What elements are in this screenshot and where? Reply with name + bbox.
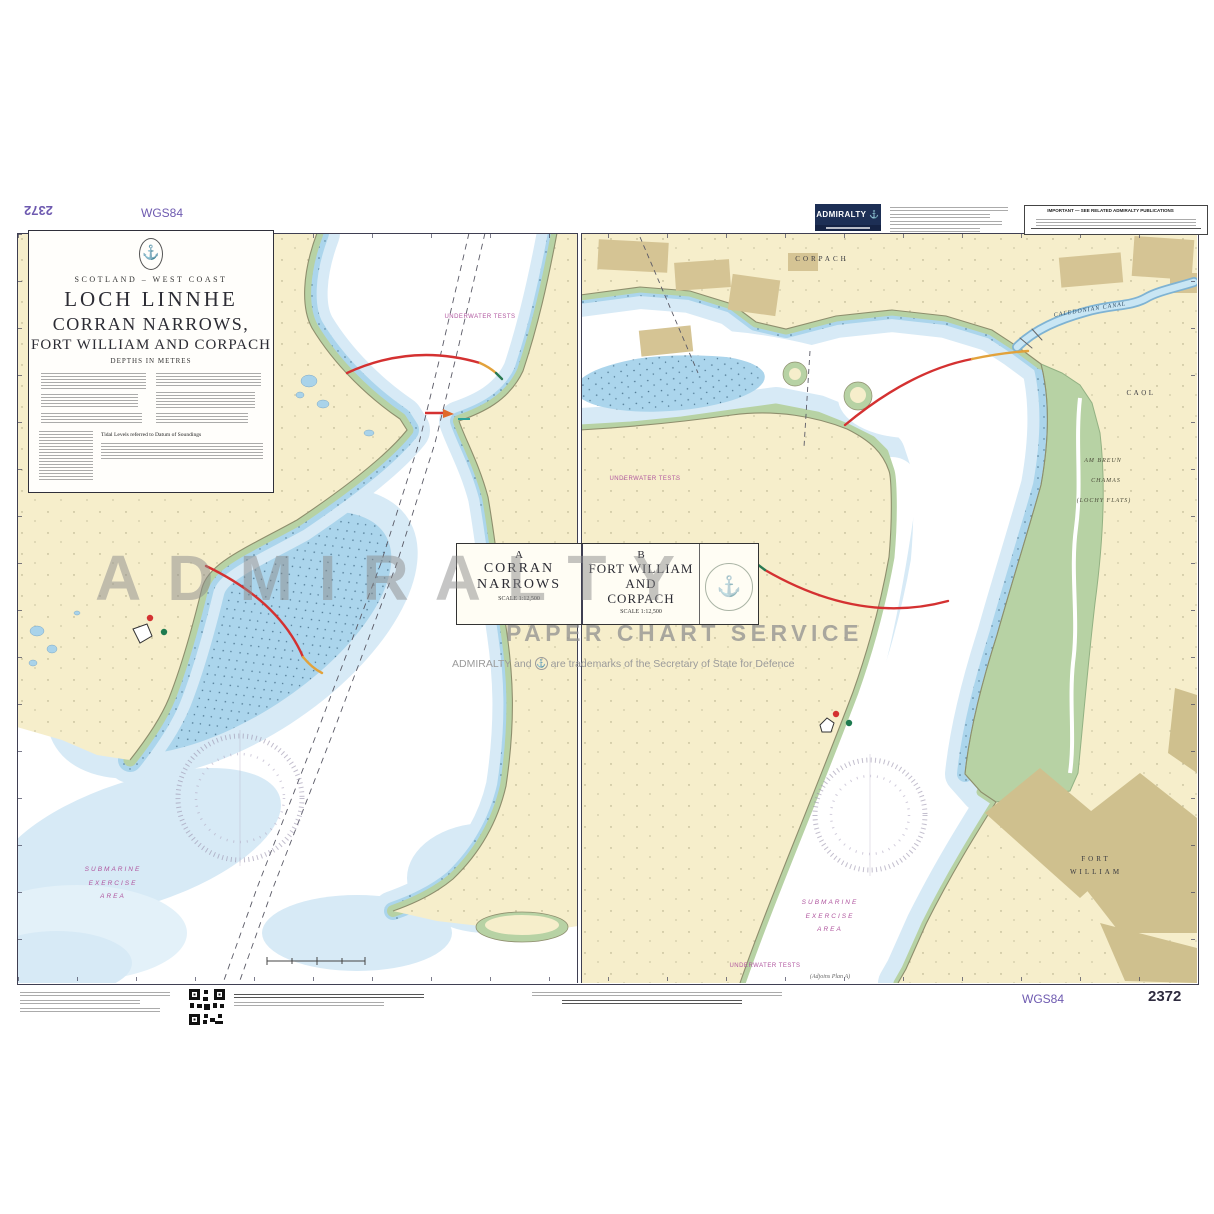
label-submarine-area-b-1: SUBMARINE <box>802 899 859 906</box>
graticule-ticks-bottom <box>18 977 1195 981</box>
admiralty-logo-tagline <box>815 225 881 231</box>
label-caol: CAOL <box>1126 389 1155 397</box>
datum-label-bottom: WGS84 <box>1022 992 1064 1006</box>
paper-chart-service-watermark: PAPER CHART SERVICE <box>506 620 863 647</box>
label-flats-3: (LOCHY FLATS) <box>1077 498 1132 504</box>
graticule-ticks-right <box>1191 234 1195 981</box>
chart-title-2: CORRAN NARROWS, <box>29 314 273 335</box>
graticule-ticks-left <box>18 234 22 981</box>
copyright-line <box>532 992 782 1004</box>
admiralty-logo: ADMIRALTY⚓ <box>815 204 881 231</box>
trademark-line: ADMIRALTY and ⚓ are trademarks of the Se… <box>452 657 795 670</box>
label-flats-1: AM BREUN <box>1084 458 1122 464</box>
chart-number-top: 2372 <box>24 203 53 218</box>
chart-page: 2372 WGS84 ADMIRALTY⚓ IMPORTANT — SEE RE… <box>0 0 1214 1214</box>
crest-anchor-icon: ⚓ <box>139 238 163 270</box>
label-submarine-area-b-3: AREA <box>817 926 843 933</box>
qr-caption <box>234 994 424 1006</box>
trademark-anchor-icon: ⚓ <box>535 657 548 670</box>
label-fort-william-1: FORT <box>1081 855 1110 863</box>
datum-label-top: WGS84 <box>141 206 183 220</box>
qr-code <box>188 988 226 1026</box>
trademark-prefix: ADMIRALTY and <box>452 658 532 670</box>
title-block-notes <box>29 373 273 425</box>
label-underwater-tests-b-2: UNDERWATER TESTS <box>729 963 800 969</box>
label-submarine-area-a-3: AREA <box>100 893 126 900</box>
chart-region: SCOTLAND – WEST COAST <box>29 275 273 284</box>
print-info-block <box>20 992 170 1012</box>
anchor-icon: ⚓ <box>869 210 879 219</box>
label-underwater-tests-b-1: UNDERWATER TESTS <box>609 476 680 482</box>
header-smallprint <box>890 207 1008 232</box>
admiralty-watermark: ADMIRALTY <box>95 541 725 615</box>
chart-title-3: FORT WILLIAM AND CORPACH <box>29 337 273 354</box>
label-submarine-area-a-1: SUBMARINE <box>85 866 142 873</box>
label-submarine-area-a-2: EXERCISE <box>89 880 138 887</box>
important-notice-title: IMPORTANT — SEE RELATED ADMIRALTY PUBLIC… <box>1028 208 1193 213</box>
important-notice-box: IMPORTANT — SEE RELATED ADMIRALTY PUBLIC… <box>1024 205 1208 235</box>
chart-number-bottom: 2372 <box>1148 988 1181 1005</box>
label-underwater-tests-a: UNDERWATER TESTS <box>444 314 515 320</box>
tidal-table: Tidal Levels referred to Datum of Soundi… <box>29 431 273 481</box>
label-submarine-area-b-2: EXERCISE <box>806 913 855 920</box>
chart-depths-note: DEPTHS IN METRES <box>29 357 273 365</box>
label-flats-2: CHAMAS <box>1091 478 1121 484</box>
tidal-table-caption: Tidal Levels referred to Datum of Soundi… <box>101 431 201 437</box>
label-fort-william-2: WILLIAM <box>1070 868 1122 876</box>
chart-title-1: LOCH LINNHE <box>29 287 273 312</box>
trademark-suffix: are trademarks of the Secretary of State… <box>551 658 795 670</box>
title-block: ⚓ SCOTLAND – WEST COAST LOCH LINNHE CORR… <box>28 230 274 493</box>
label-adjoins-plan-a: (Adjoins Plan A) <box>810 974 850 980</box>
admiralty-logo-text: ADMIRALTY <box>816 210 866 219</box>
label-corpach: CORPACH <box>795 255 848 263</box>
